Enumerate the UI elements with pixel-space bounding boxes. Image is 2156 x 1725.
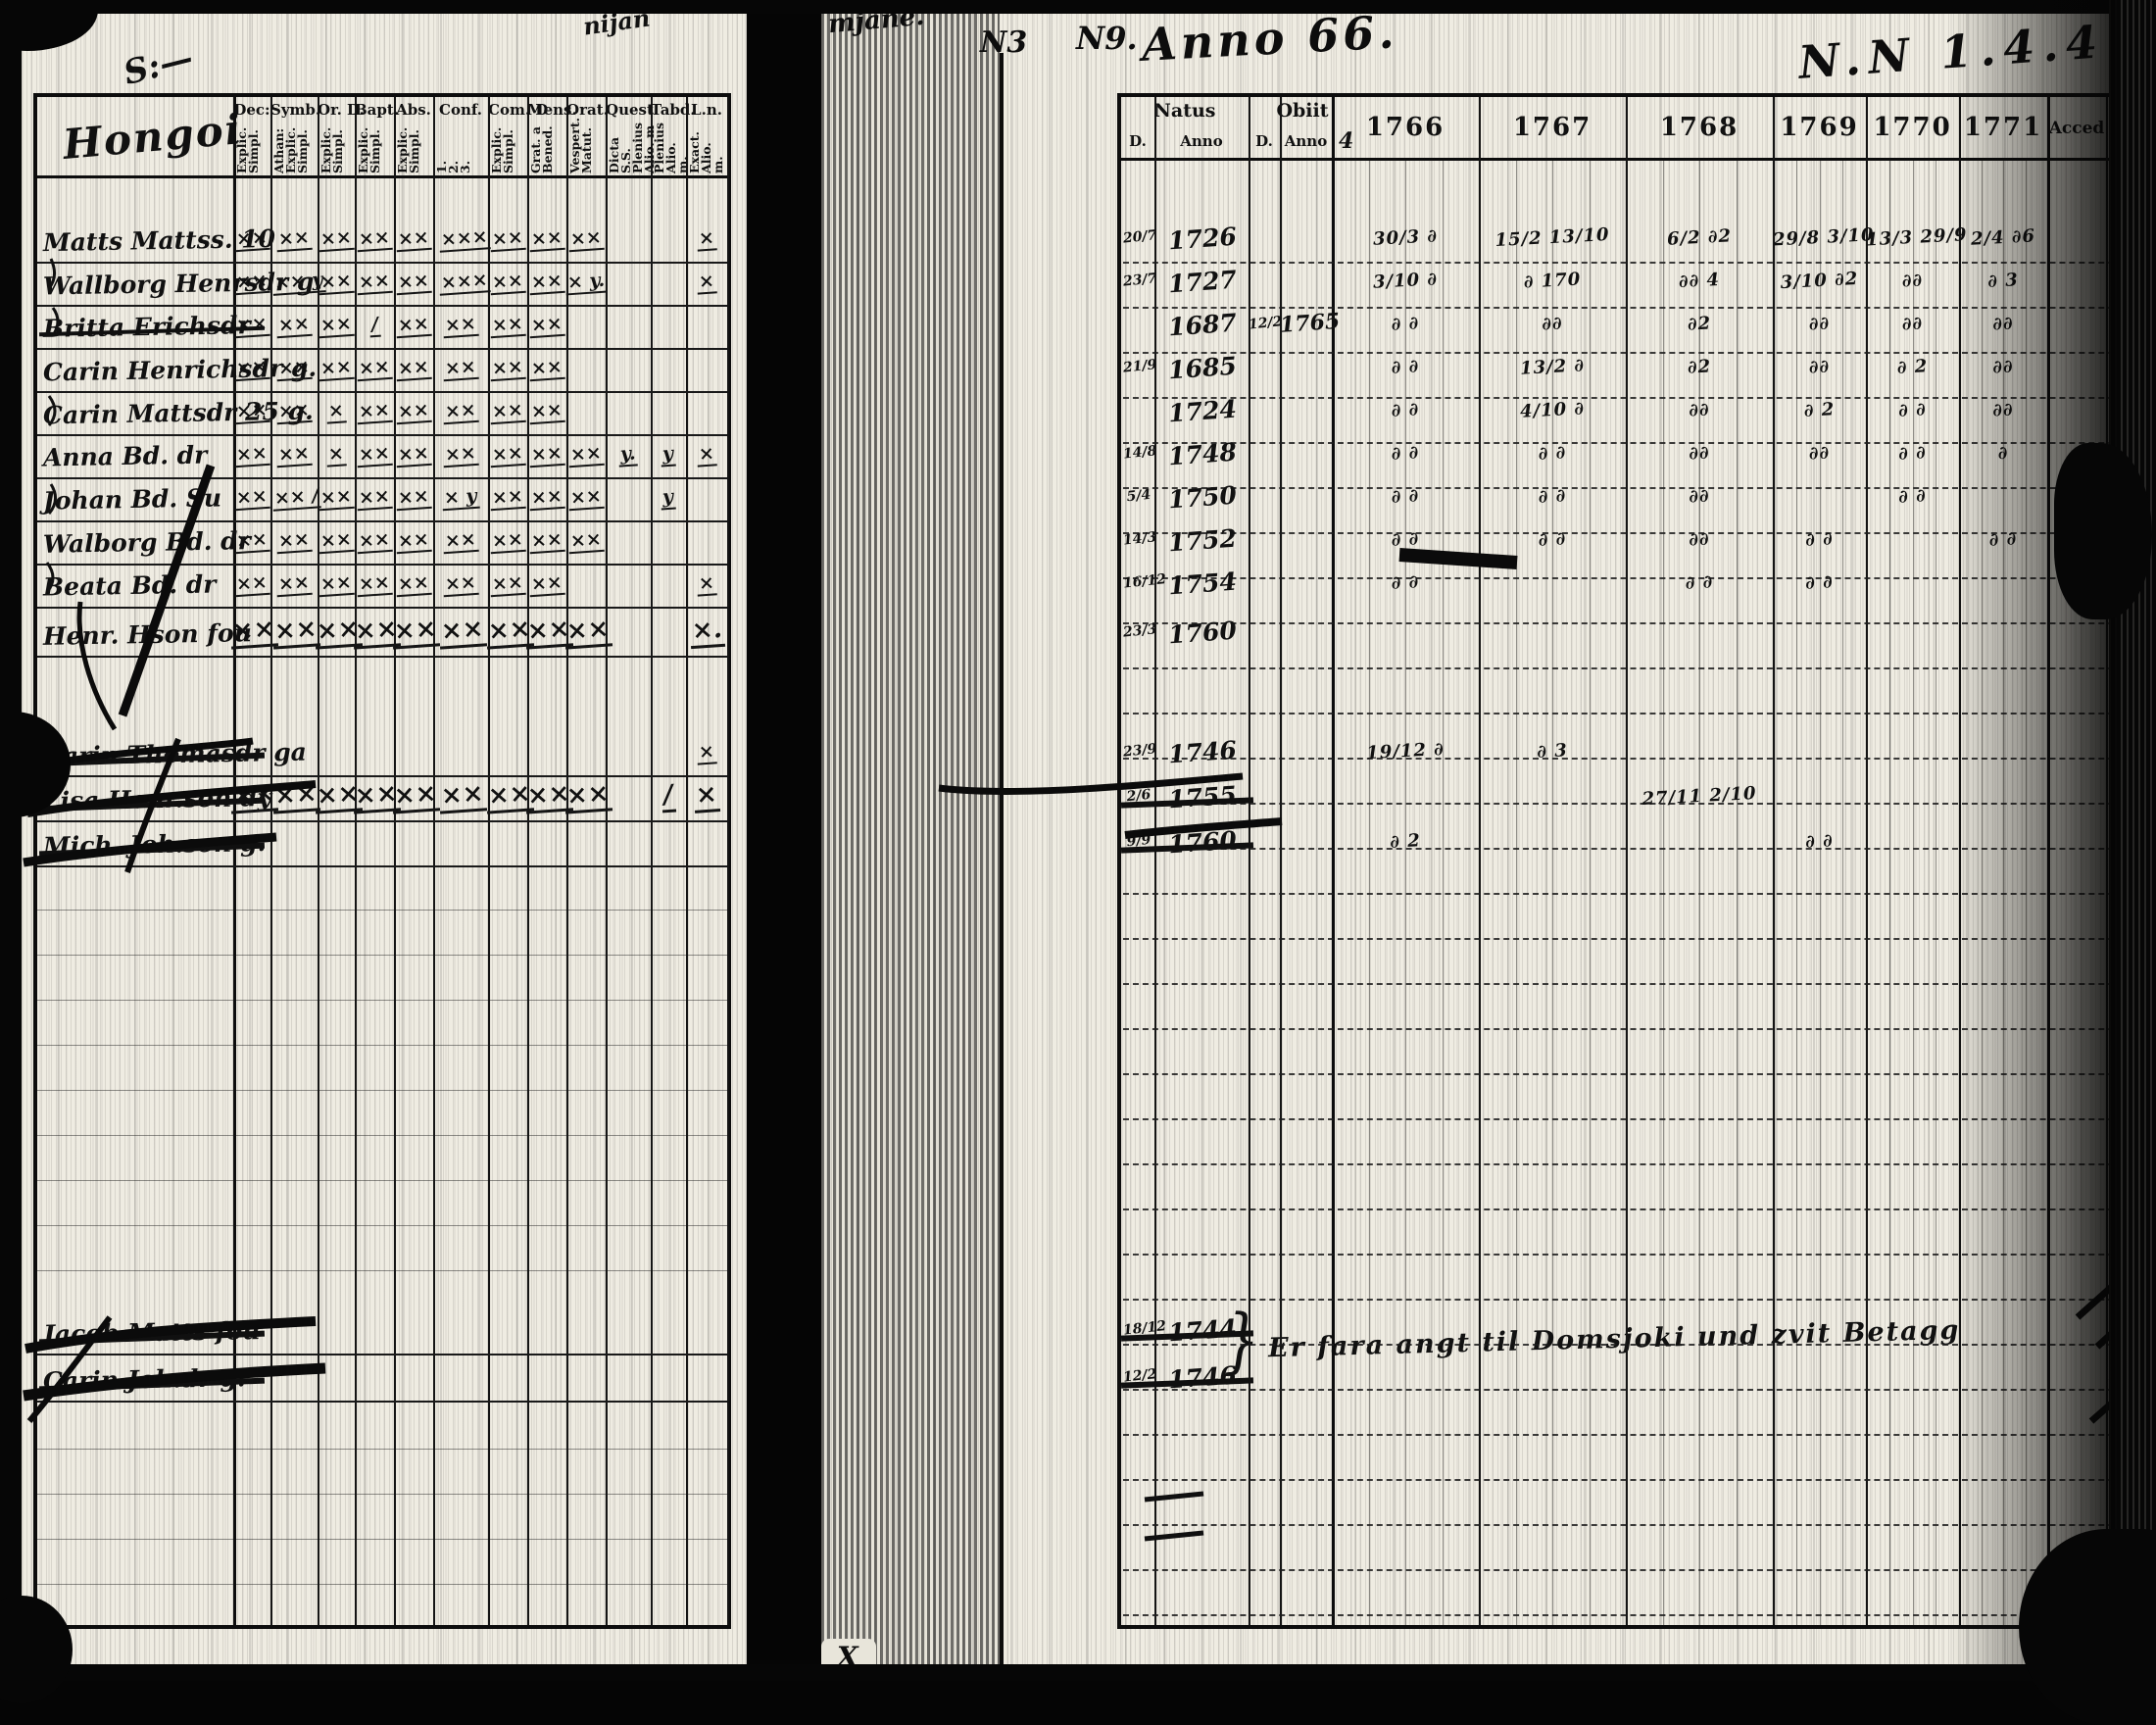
mark-cell: ×× (315, 227, 358, 251)
left-page: Hongoi S:— Dec:Explic. Simpl.Symb.Athan:… (22, 14, 747, 1666)
left-col-subheader-4: Explic. Simpl. (397, 124, 432, 173)
mark-cell: / (647, 780, 690, 813)
left-row-4: Carin Mattsdr 25 g.××××××××××××××× (37, 392, 727, 435)
mark-cell: ×× (230, 357, 273, 380)
mark-cell: ×× (272, 780, 316, 813)
left-ruled-line (37, 1270, 727, 1271)
mark-cell: ×× (392, 314, 435, 337)
mark-cell: ×× (486, 572, 529, 596)
mark-cell: × (685, 572, 728, 596)
mark-cell: ×× (272, 357, 316, 380)
natus-day: 23/7 (1122, 271, 1154, 289)
mark-cell: ×× (230, 529, 273, 553)
examination-mark: ×× (442, 399, 478, 424)
person-name: Anna Bd. dr (43, 441, 208, 472)
mark-cell: ×× (564, 443, 608, 467)
examination-mark: ×× (356, 442, 392, 468)
examination-mark: ×× (528, 528, 564, 554)
examination-mark: ×× (528, 313, 564, 338)
mark-cell: ×× (564, 616, 608, 648)
left-col-header-2: Or. D. (318, 101, 355, 119)
examination-mark: ×× (489, 442, 525, 468)
examination-mark: ×× (233, 226, 269, 252)
mark-cell: ×× (525, 400, 568, 423)
mark-cell: ×× (315, 271, 358, 294)
examination-mark: ×× (528, 356, 564, 381)
left-col-header-7: Mens. (527, 101, 566, 119)
natus-year: 1746 (1155, 735, 1249, 769)
examination-mark: ×× (395, 226, 431, 252)
examination-mark: ×. (688, 615, 724, 649)
mark-cell: ×× (392, 227, 435, 251)
place-name: Hongoi (61, 105, 244, 169)
mark-cell: ×× (486, 616, 529, 648)
communion-mark: 30/3 ∂ (1332, 223, 1480, 252)
header-year-1766: 1766 (1332, 113, 1479, 142)
examination-mark: ×× (275, 226, 312, 252)
examination-mark: × (693, 779, 720, 813)
examination-mark: ×× (395, 485, 431, 511)
communion-mark: ∂∂ (1866, 312, 1960, 337)
mark-cell: ×× (564, 486, 608, 510)
left-ruled-line (37, 1584, 727, 1585)
mark-cell: ×× (525, 529, 568, 553)
mark-cell: ×× (439, 529, 482, 553)
examination-mark: ×× (233, 270, 269, 295)
mark-cell: ×× (486, 443, 529, 467)
mark-cell: ×× (439, 357, 482, 380)
mark-cell: ×× (525, 443, 568, 467)
communion-mark: ∂ ∂ (1332, 525, 1480, 554)
examination-mark: ×× (489, 226, 525, 252)
mark-cell: ×× (392, 780, 435, 813)
mark-cell: ××× (439, 227, 482, 251)
left-col-header-3: Bapt. (355, 101, 394, 119)
left-col-header-10: Tabd. (651, 101, 686, 119)
mark-cell: × (685, 227, 728, 251)
communion-mark: ∂∂ (1773, 312, 1867, 337)
left-row-6: Johan Bd. Su×××× /××××××× y××××××y (37, 478, 727, 521)
mark-cell: ×× (353, 780, 396, 813)
left-row-0: Matts Mattss. 10×××××××××××××××××××× (37, 220, 727, 263)
left-ruled-line (37, 1180, 727, 1181)
examination-mark: ×× (318, 226, 354, 252)
mark-cell: ×× (525, 616, 568, 648)
mark-cell: ×× (230, 486, 273, 510)
person-name: Walborg Bd. dr (43, 526, 251, 559)
mark-cell: ×× (230, 572, 273, 596)
communion-mark: ∂ ∂ (1479, 482, 1627, 511)
folio-no-left: N3 (980, 25, 1027, 60)
mark-cell: ×× (525, 357, 568, 380)
mark-cell: ×× (486, 357, 529, 380)
examination-mark: ×× (528, 442, 564, 468)
communion-mark: ∂ 3 (1479, 737, 1627, 765)
mark-cell: ×× / (272, 486, 316, 510)
communion-mark: ∂ 2 (1866, 355, 1960, 380)
mark-cell: ×. (685, 616, 728, 648)
natus-day: 14/8 (1122, 443, 1154, 462)
left-ruled-line (37, 1539, 727, 1540)
examination-mark: ×× (528, 270, 564, 295)
mark-cell: × (685, 780, 728, 813)
communion-mark: ∂∂ (1626, 396, 1774, 424)
examination-mark: ×× (442, 442, 478, 468)
communion-mark: ∂∂ (1626, 525, 1774, 554)
person-name: Carin Thomasdr ga (43, 738, 307, 771)
mark-cell: ×× (315, 572, 358, 596)
mark-cell: ×× (392, 529, 435, 553)
left-ruled-line (37, 1494, 727, 1495)
place-name-flourish: S:— (120, 38, 197, 93)
left-row-14: Carin Joh.dr g. (37, 1358, 727, 1402)
left-col-subheader-1: Athan: Explic. Simpl. (273, 124, 317, 173)
communion-mark: 15/2 13/10 (1479, 223, 1627, 252)
communion-mark: ∂∂ (1626, 482, 1774, 511)
communion-mark: ∂ ∂ (1773, 829, 1867, 855)
scanned-ledger-page: { "marginalia": { "top_scribble_1": "nij… (0, 0, 2156, 1681)
left-col-subheader-2: Explic. Simpl. (320, 124, 354, 173)
examination-mark: / (368, 314, 381, 338)
communion-mark: ∂2 (1626, 310, 1774, 338)
examination-mark: ×× (275, 356, 312, 381)
mark-cell: ×× (230, 443, 273, 467)
mark-cell: ×× (315, 314, 358, 337)
natus-year: 1724 (1155, 394, 1249, 428)
left-row-7: Walborg Bd. dr×××××××××××××××××× (37, 521, 727, 565)
mark-cell: y. (607, 443, 650, 467)
mark-cell: ×× (230, 400, 273, 423)
examination-mark: ×× (275, 442, 312, 468)
mark-cell: ×× (272, 400, 316, 423)
natus-year: 1752 (1155, 523, 1249, 558)
communion-mark: ∂ ∂ (1332, 353, 1480, 381)
communion-mark: ∂ 2 (1332, 827, 1480, 856)
examination-mark: ×× (442, 356, 478, 381)
mark-cell: ×× (230, 616, 273, 648)
examination-mark: ×× (275, 528, 312, 554)
examination-mark: × (696, 442, 717, 467)
left-col-subheader-8: Vespert. Matut. (569, 124, 605, 173)
examination-mark: ×× (563, 614, 612, 649)
examination-mark: ×× (318, 528, 354, 554)
mark-cell: y (647, 486, 690, 510)
examination-mark: ×× (395, 442, 431, 468)
mark-cell: × (685, 443, 728, 467)
examination-mark: ××× (438, 225, 490, 253)
mark-cell: ×× (272, 443, 316, 467)
communion-mark: 19/12 ∂ (1332, 737, 1480, 765)
mark-cell: ××× (439, 271, 482, 294)
left-col-header-8: Orat. (566, 101, 606, 119)
examination-mark: × y (441, 485, 479, 512)
examination-mark: ×× (438, 778, 487, 813)
left-col-subheader-7: Grat. a Bened. (530, 124, 565, 173)
mark-cell: ×× (486, 314, 529, 337)
mark-cell: ×× (486, 529, 529, 553)
left-row-10: Carin Thomasdr ga× (37, 733, 727, 776)
examination-mark: × y. (564, 270, 608, 296)
mark-cell: / (353, 314, 396, 337)
mark-cell: ×× (564, 529, 608, 553)
examination-mark: ××× (438, 269, 490, 296)
mark-cell: ×× (353, 357, 396, 380)
mark-cell: ×× (230, 780, 273, 813)
left-row-11: Lisa Henr.son dy××××××××××××××××××/× (37, 778, 727, 821)
examination-mark: ×× (489, 485, 525, 511)
communion-mark: ∂∂ (1479, 310, 1627, 338)
communion-mark: ∂∂ (1626, 439, 1774, 468)
obiit-year: 1765 (1279, 309, 1336, 338)
communion-mark: ∂ 170 (1479, 267, 1627, 295)
examination-mark: ×× (356, 399, 392, 424)
header-year-1770: 1770 (1866, 113, 1959, 142)
mark-cell: ×× (486, 486, 529, 510)
examination-mark: × (696, 740, 717, 764)
examination-mark: ×× (528, 485, 564, 511)
communion-mark: ∂ ∂ (1773, 527, 1867, 553)
left-ruled-line (37, 1449, 727, 1450)
examination-mark: y (661, 486, 677, 511)
mark-cell: ×× y (272, 271, 316, 294)
examination-mark: ×× (275, 313, 312, 338)
header-year-1767: 1767 (1479, 113, 1626, 142)
mark-cell: × y (439, 486, 482, 510)
examination-mark: ×× (356, 571, 392, 597)
left-col-subheader-9: Dicta S.S. Plenius Alio. m (609, 124, 650, 173)
communion-mark: ∂ ∂ (1479, 439, 1627, 468)
mark-cell: × (685, 741, 728, 764)
examination-mark: ×× (395, 528, 431, 554)
communion-mark: ∂ ∂ (1866, 441, 1960, 467)
examination-mark: ×× (391, 778, 440, 813)
natus-day: 23/3 (1122, 621, 1154, 640)
left-col-subheader-0: Explic. Simpl. (236, 124, 269, 173)
examination-mark: ×× (356, 226, 392, 252)
left-ruled-line (37, 955, 727, 956)
left-col-line (727, 97, 729, 1625)
mark-cell: ×× (353, 529, 396, 553)
mark-cell: ×× (439, 314, 482, 337)
mark-cell: ×× (439, 780, 482, 813)
mark-cell: × y. (564, 271, 608, 294)
natus-day: 23/9 (1122, 741, 1154, 760)
gutter-shadow (821, 14, 1000, 1666)
natus-year: 1760 (1155, 616, 1249, 650)
mark-cell: ×× (525, 780, 568, 813)
examination-mark: ×× (233, 399, 269, 424)
mark-cell: ×× (353, 443, 396, 467)
natus-year: 1754 (1155, 567, 1249, 601)
header-obiit-anno: Anno (1280, 132, 1332, 150)
examination-mark: ×× (567, 528, 604, 554)
mark-cell: ×× (353, 486, 396, 510)
examination-mark: × (696, 226, 717, 251)
mark-cell: ×× (230, 227, 273, 251)
left-ruled-line (37, 910, 727, 911)
mark-cell: ×× (353, 572, 396, 596)
left-col-header-5: Conf. (433, 101, 488, 119)
scan-edge-left (0, 0, 22, 1681)
examination-mark: ×× (395, 399, 431, 424)
examination-mark: ×× (567, 226, 604, 252)
left-row-1: Wallborg Henrsdr g.×××× y×××××××××××××× … (37, 263, 727, 306)
examination-mark: ×× (442, 571, 478, 597)
examination-mark: ×× (567, 485, 604, 511)
mark-cell: ×× (272, 529, 316, 553)
left-row-13: Jacob Matts fou (37, 1311, 727, 1355)
left-ruled-line (37, 1045, 727, 1046)
examination-mark: ×× (233, 356, 269, 381)
communion-mark: ∂ ∂ (1332, 482, 1480, 511)
mark-cell: ×× (230, 314, 273, 337)
left-col-header-11: L.n. (686, 101, 727, 119)
examination-mark: ×× (356, 356, 392, 381)
communion-mark: 13/3 29/9 (1866, 225, 1960, 251)
header-natus: Natus (1121, 100, 1249, 122)
examination-mark: ×× (233, 485, 269, 511)
left-row-3: Carin Henrichsdr g.×××××××××××××××× (37, 349, 727, 392)
right-edge-vignette (1950, 0, 2117, 1681)
mark-cell: × (685, 271, 728, 294)
communion-mark: ∂ ∂ (1773, 570, 1867, 596)
mark-cell: ×× (439, 572, 482, 596)
left-ruled-line (37, 1135, 727, 1136)
mark-cell: ×× (439, 616, 482, 648)
examination-mark: ×× (318, 571, 354, 597)
mark-cell: ×× (392, 271, 435, 294)
examination-mark: ×× (318, 270, 354, 295)
examination-mark: ×× (395, 571, 431, 597)
examination-mark: ×× (318, 485, 354, 511)
mark-cell: ×× (439, 443, 482, 467)
communion-mark: 13/2 ∂ (1479, 353, 1627, 381)
obiit-day: 12/2 (1248, 314, 1280, 332)
natus-year: 1685 (1155, 351, 1249, 385)
left-col-subheader-5: 1. 2. 3. (436, 124, 487, 173)
examination-mark: ×× (528, 226, 564, 252)
header-year-1769: 1769 (1773, 113, 1866, 142)
mark-cell: ×× (272, 616, 316, 648)
left-col-subheader-6: Explic. Simpl. (491, 124, 526, 173)
examination-mark: ×× (489, 356, 525, 381)
examination-mark: ×× (395, 270, 431, 295)
natus-year: 1750 (1155, 480, 1249, 515)
communion-mark: 29/8 3/10 (1773, 225, 1867, 251)
examination-mark: ×× (391, 614, 440, 649)
mark-cell: ×× (392, 616, 435, 648)
communion-mark: ∂ ∂ (1866, 398, 1960, 423)
examination-mark: ×× (442, 313, 478, 338)
communion-mark: ∂2 (1626, 353, 1774, 381)
scan-edge-bottom (0, 1664, 2156, 1681)
mark-cell: ×× (525, 271, 568, 294)
mark-cell: y (647, 443, 690, 467)
natus-day: 20/7 (1122, 227, 1154, 246)
left-row-8: Beata Bd. dr××××××××××××××××× (37, 565, 727, 608)
natus-day: 21/9 (1122, 357, 1154, 375)
examination-mark: / (661, 780, 676, 813)
left-row-12: Mich. Joh.son g. (37, 823, 727, 866)
examination-mark: ×× (528, 571, 564, 597)
communion-mark: ∂ ∂ (1479, 525, 1627, 554)
mark-cell: ×× (525, 572, 568, 596)
left-col-header-1: Symb. (270, 101, 318, 119)
communion-mark: ∂ ∂ (1332, 568, 1480, 597)
communion-mark: 27/11 2/10 (1626, 782, 1774, 811)
folio-no-right: N9. (1076, 20, 1138, 57)
mark-cell: ×× (486, 400, 529, 423)
communion-mark: ∂ ∂ (1866, 484, 1960, 510)
examination-mark: ×× (438, 614, 487, 649)
left-ruled-line (37, 1000, 727, 1001)
mark-cell: ×× (392, 572, 435, 596)
left-col-header-9: Quest. (606, 101, 651, 119)
examination-mark: y. (617, 442, 638, 467)
communion-mark: 6/2 ∂2 (1626, 223, 1774, 252)
communion-mark: ∂∂ 4 (1626, 267, 1774, 295)
mark-cell: ×× (353, 400, 396, 423)
examination-mark: ×× (318, 356, 354, 381)
mark-cell: ×× (486, 271, 529, 294)
communion-mark: ∂ ∂ (1332, 439, 1480, 468)
left-row-9: Henr. Hson fou×××××××××××××××××××. (37, 614, 727, 657)
examination-mark: ×× (563, 778, 612, 813)
mark-cell: ×× (486, 227, 529, 251)
left-register-table: Hongoi S:— Dec:Explic. Simpl.Symb.Athan:… (33, 93, 731, 1629)
mark-cell: ×× (353, 227, 396, 251)
person-name: Henr. Hson fou (43, 618, 252, 651)
mark-cell: × (315, 443, 358, 467)
left-row-2: Britta Erichsdr××××××/×××××××× (37, 306, 727, 349)
mark-cell: ×× (392, 443, 435, 467)
scan-edge-top (0, 0, 2156, 14)
mark-cell: ×× (392, 486, 435, 510)
left-col-subheader-3: Explic. Simpl. (358, 124, 393, 173)
examination-mark: ×× (567, 442, 604, 468)
mark-cell: ×× (315, 357, 358, 380)
examination-mark: ×× (489, 313, 525, 338)
left-col-header-4: Abs. (394, 101, 433, 119)
mark-cell: ×× (230, 271, 273, 294)
examination-mark: ×× (489, 571, 525, 597)
examination-mark: × (325, 442, 347, 467)
header-year-1768: 1768 (1626, 113, 1773, 142)
examination-mark: ×× (489, 528, 525, 554)
communion-mark: 3/10 ∂ (1332, 267, 1480, 295)
natus-year: 1748 (1155, 437, 1249, 471)
left-ruled-line (37, 1225, 727, 1226)
natus-day: 16/12 (1122, 572, 1154, 591)
natus-day: 5/4 (1122, 486, 1154, 505)
header-natus-anno: Anno (1154, 132, 1249, 150)
examination-mark: ×× (275, 571, 312, 597)
examination-mark: ×× (442, 528, 478, 554)
examination-mark: ×× (318, 313, 354, 338)
mark-cell: ×× (315, 486, 358, 510)
mark-cell: ×× (486, 780, 529, 813)
communion-mark: ∂∂ (1773, 441, 1867, 467)
natus-year: 1727 (1155, 265, 1249, 299)
header-obiit-d: D. (1249, 132, 1280, 150)
mark-cell: × (315, 400, 358, 423)
communion-mark: ∂ 2 (1773, 398, 1867, 423)
examination-mark: y (661, 443, 677, 468)
communion-mark: ∂∂ (1773, 355, 1867, 380)
mark-cell: ×× (392, 400, 435, 423)
mark-cell: ×× (439, 400, 482, 423)
communion-mark: ∂ ∂ (1626, 568, 1774, 597)
